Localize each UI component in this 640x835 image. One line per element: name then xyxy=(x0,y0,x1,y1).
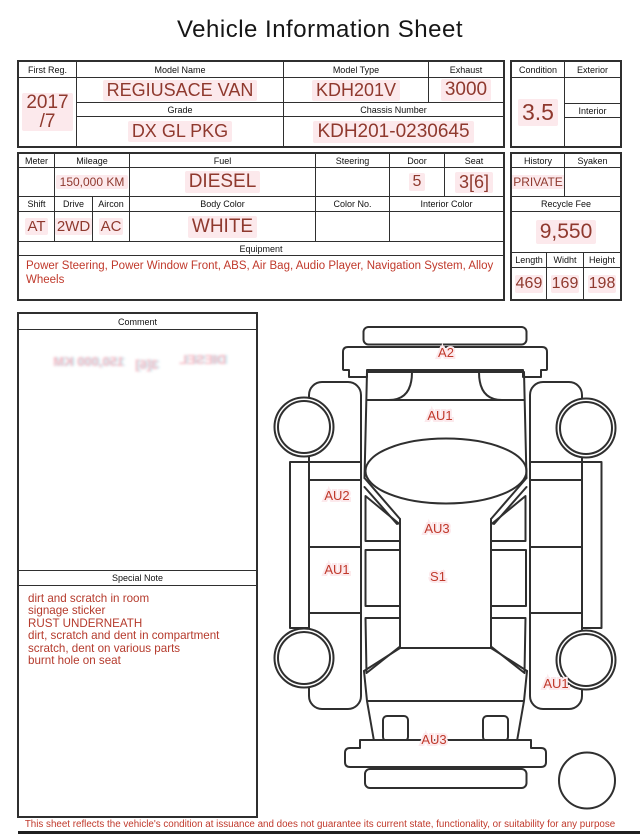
diagram-label-a2: A2 xyxy=(438,345,454,360)
condition-label: Condition xyxy=(512,62,565,78)
aircon-value: AC xyxy=(93,212,130,242)
condition-value: 3.5 xyxy=(512,78,565,146)
front-right-wheel xyxy=(557,399,616,458)
diagram-label-au2: AU2 xyxy=(324,488,349,503)
diagram-label-au3: AU3 xyxy=(424,521,449,536)
spec-table: Meter Mileage Fuel Steering Door Seat 15… xyxy=(17,152,505,301)
special-note-label: Special Note xyxy=(19,570,256,586)
bottom-rule xyxy=(18,831,640,834)
page-title: Vehicle Information Sheet xyxy=(0,16,640,44)
special-note-line: burnt hole on seat xyxy=(28,655,252,667)
bleed-through-text: 150,000 KM xyxy=(53,354,124,369)
right-lower-window xyxy=(491,618,526,673)
height-label: Height xyxy=(584,253,620,268)
model-name-value: REGIUSACE VAN xyxy=(77,78,284,103)
diagram-label-au3: AU3 xyxy=(421,732,446,747)
mileage-value: 150,000 KM xyxy=(55,168,130,197)
diagram-label-s1: S1 xyxy=(430,569,446,584)
recycle-fee-label: Recycle Fee xyxy=(512,197,620,212)
interior-label: Interior xyxy=(565,104,620,118)
exterior-label: Exterior xyxy=(565,62,620,78)
car-damage-diagram: A2AU1AU2AU3AU1S1AU1AU3 xyxy=(263,315,640,820)
disclaimer-text: This sheet reflects the vehicle's condit… xyxy=(0,819,640,830)
width-value: 169 xyxy=(547,268,584,299)
shift-value: AT xyxy=(19,212,55,242)
exterior-value xyxy=(565,78,620,104)
chassis-number-value: KDH201-0230645 xyxy=(284,117,503,146)
bleed-through-text: 3[6] xyxy=(135,357,158,372)
special-note-line: dirt, scratch and dent in compartment xyxy=(28,630,252,642)
first-reg-value: 2017 /7 xyxy=(19,78,77,146)
special-note-list: dirt and scratch in room signage sticker… xyxy=(19,588,256,667)
door-label: Door xyxy=(390,154,445,168)
right-tail-lamp xyxy=(483,716,508,741)
exhaust-value: 3000 xyxy=(429,78,503,103)
width-label: Widht xyxy=(547,253,584,268)
condition-table: Condition Exterior 3.5 Interior xyxy=(510,60,622,148)
diagram-label-au1: AU1 xyxy=(543,676,568,691)
syaken-value xyxy=(565,168,620,197)
front-roof-strip xyxy=(364,327,527,345)
model-type-value: KDH201V xyxy=(284,78,429,103)
vehicle-information-sheet: { "title": "Vehicle Information Sheet", … xyxy=(0,0,640,835)
syaken-label: Syaken xyxy=(565,154,620,168)
grade-label: Grade xyxy=(77,103,284,117)
bleed-through-text: DIESEL xyxy=(179,352,226,367)
diagram-label-au1: AU1 xyxy=(427,408,452,423)
left-tail-lamp xyxy=(383,716,408,741)
windshield-ellipse xyxy=(366,439,527,504)
diagram-label-au1: AU1 xyxy=(324,562,349,577)
seat-value: 3[6] xyxy=(445,168,503,197)
front-left-wheel xyxy=(275,398,334,457)
drive-label: Drive xyxy=(55,197,93,212)
door-value: 5 xyxy=(390,168,445,197)
drive-value: 2WD xyxy=(55,212,93,242)
fuel-label: Fuel xyxy=(130,154,316,168)
equipment-label: Equipment xyxy=(19,242,503,256)
a-pillar-diagonals xyxy=(365,478,527,524)
body-color-value: WHITE xyxy=(130,212,316,242)
aircon-label: Aircon xyxy=(93,197,130,212)
rear-roof-strip xyxy=(365,769,527,788)
interior-color-value xyxy=(390,212,503,242)
rear-pillar-diagonals xyxy=(364,648,527,671)
body-color-label: Body Color xyxy=(130,197,316,212)
special-note-line: signage sticker xyxy=(28,605,252,617)
comment-box: Comment 150,000 KM 3[6] DIESEL Special N… xyxy=(17,312,258,818)
right-mid-window xyxy=(491,550,526,606)
color-no-value xyxy=(316,212,390,242)
first-reg-label: First Reg. xyxy=(19,62,77,78)
history-value: PRIVATE xyxy=(512,168,565,197)
exhaust-label: Exhaust xyxy=(429,62,503,78)
left-lower-window xyxy=(366,618,401,673)
body-front-outline xyxy=(365,372,527,478)
shift-label: Shift xyxy=(19,197,55,212)
rear-left-wheel xyxy=(275,629,334,688)
steering-value xyxy=(316,168,390,197)
left-rocker-strip xyxy=(290,462,310,628)
left-upper-window xyxy=(366,496,401,541)
first-reg-year: 2017 xyxy=(26,93,68,112)
color-no-label: Color No. xyxy=(316,197,390,212)
model-name-label: Model Name xyxy=(77,62,284,78)
interior-color-label: Interior Color xyxy=(390,197,503,212)
meter-label: Meter xyxy=(19,154,55,168)
mileage-label: Mileage xyxy=(55,154,130,168)
first-reg-month: /7 xyxy=(40,112,56,131)
spare-tire xyxy=(559,753,615,809)
model-type-label: Model Type xyxy=(284,62,429,78)
length-label: Length xyxy=(512,253,547,268)
meter-value xyxy=(19,168,55,197)
history-label: History xyxy=(512,154,565,168)
seat-label: Seat xyxy=(445,154,503,168)
left-mid-window xyxy=(366,550,401,606)
front-corner-arcs xyxy=(389,372,502,400)
interior-value xyxy=(565,118,620,146)
equipment-value: Power Steering, Power Window Front, ABS,… xyxy=(19,256,503,299)
steering-label: Steering xyxy=(316,154,390,168)
history-table: History Syaken PRIVATE Recycle Fee 9,550… xyxy=(510,152,622,301)
right-upper-window xyxy=(491,496,526,541)
length-value: 469 xyxy=(512,268,547,299)
comment-label: Comment xyxy=(19,314,256,330)
fuel-value: DIESEL xyxy=(130,168,316,197)
chassis-number-label: Chassis Number xyxy=(284,103,503,117)
recycle-fee-value: 9,550 xyxy=(512,212,620,253)
registration-table: First Reg. Model Name Model Type Exhaust… xyxy=(17,60,505,148)
grade-value: DX GL PKG xyxy=(77,117,284,146)
right-rocker-strip xyxy=(582,462,602,628)
height-value: 198 xyxy=(584,268,620,299)
